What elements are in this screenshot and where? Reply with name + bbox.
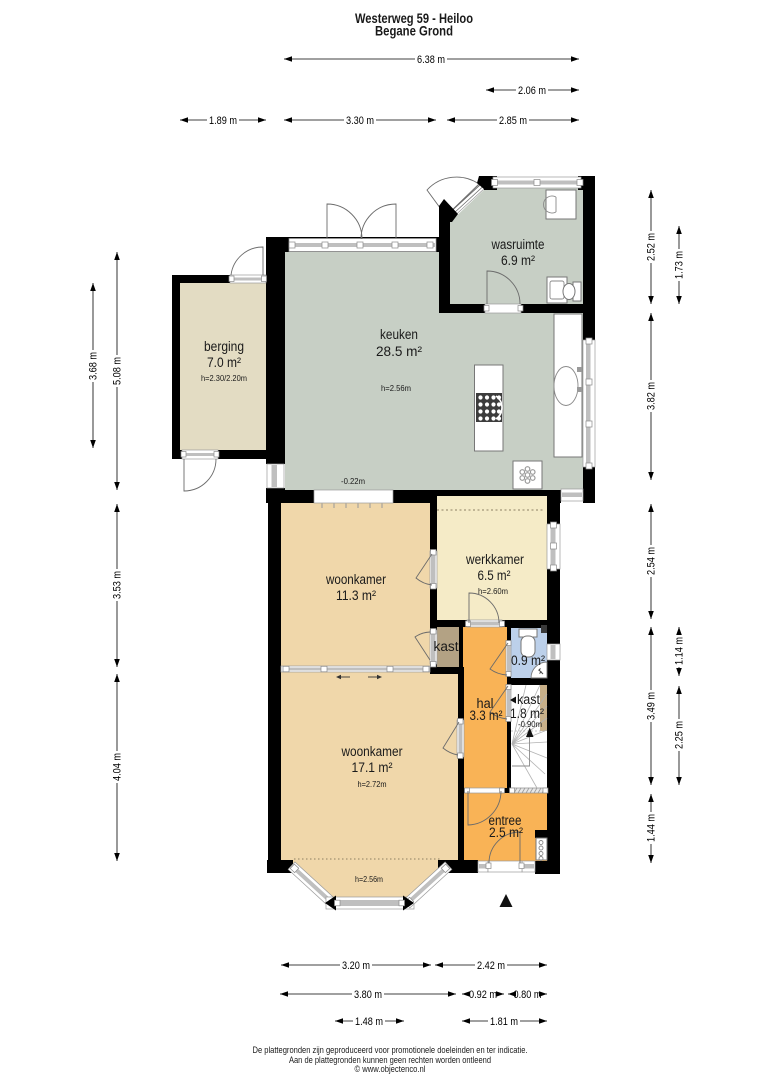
svg-text:2.85 m: 2.85 m <box>499 115 527 127</box>
svg-text:h=2.30/2.20m: h=2.30/2.20m <box>201 374 247 383</box>
svg-text:7.0 m²: 7.0 m² <box>207 355 241 370</box>
svg-text:kast: kast <box>434 639 459 654</box>
svg-text:-0.90m: -0.90m <box>518 720 542 729</box>
svg-text:1.14 m: 1.14 m <box>674 637 686 665</box>
svg-text:h=2.60m: h=2.60m <box>478 587 508 596</box>
svg-text:1.73 m: 1.73 m <box>674 251 686 279</box>
svg-text:h=2.56m: h=2.56m <box>355 875 383 884</box>
svg-text:6.5 m²: 6.5 m² <box>478 568 511 583</box>
svg-text:28.5 m²: 28.5 m² <box>376 344 422 359</box>
svg-text:11.3 m²: 11.3 m² <box>336 588 376 603</box>
svg-text:3.80 m: 3.80 m <box>354 989 382 1001</box>
svg-text:17.1 m²: 17.1 m² <box>352 760 393 775</box>
svg-text:h=2.72m: h=2.72m <box>358 780 387 789</box>
svg-text:5.08 m: 5.08 m <box>112 357 124 385</box>
svg-text:2.54 m: 2.54 m <box>646 547 658 575</box>
svg-text:keuken: keuken <box>380 327 418 342</box>
svg-text:woonkamer: woonkamer <box>341 744 403 759</box>
svg-text:0.92 m: 0.92 m <box>469 989 497 1001</box>
svg-text:woonkamer: woonkamer <box>325 572 386 587</box>
svg-text:2.06 m: 2.06 m <box>518 85 546 97</box>
svg-text:3.82 m: 3.82 m <box>646 382 658 410</box>
svg-text:1.81 m: 1.81 m <box>490 1016 518 1028</box>
svg-text:kast: kast <box>517 692 540 707</box>
svg-text:2.25 m: 2.25 m <box>674 721 686 749</box>
svg-text:1.8 m²: 1.8 m² <box>510 706 544 721</box>
svg-text:1.44 m: 1.44 m <box>646 814 658 842</box>
svg-text:3.3 m²: 3.3 m² <box>470 708 503 723</box>
svg-text:3.68 m: 3.68 m <box>88 352 100 380</box>
svg-text:werkkamer: werkkamer <box>465 552 524 567</box>
svg-text:6.9 m²: 6.9 m² <box>501 253 535 268</box>
svg-text:0.9 m²: 0.9 m² <box>511 653 545 668</box>
svg-text:3.20 m: 3.20 m <box>342 960 370 972</box>
svg-text:3.49 m: 3.49 m <box>646 692 658 720</box>
svg-text:-0.22m: -0.22m <box>341 477 365 486</box>
svg-text:4.04 m: 4.04 m <box>112 753 124 781</box>
svg-text:Begane Grond: Begane Grond <box>375 24 453 39</box>
svg-text:6.38 m: 6.38 m <box>417 54 445 66</box>
svg-text:wasruimte: wasruimte <box>491 237 545 252</box>
svg-text:h=2.56m: h=2.56m <box>381 384 411 393</box>
svg-text:0.80 m: 0.80 m <box>514 989 542 1001</box>
svg-text:2.52 m: 2.52 m <box>646 233 658 261</box>
svg-text:1.48 m: 1.48 m <box>355 1016 383 1028</box>
svg-text:3.53 m: 3.53 m <box>112 571 124 599</box>
svg-text:2.5 m²: 2.5 m² <box>489 825 523 840</box>
svg-text:berging: berging <box>204 339 244 354</box>
svg-text:3.30 m: 3.30 m <box>346 115 374 127</box>
svg-text:© www.objectenco.nl: © www.objectenco.nl <box>355 1064 426 1074</box>
svg-text:2.42 m: 2.42 m <box>477 960 505 972</box>
svg-text:1.89 m: 1.89 m <box>209 115 237 127</box>
svg-text:De plattegronden zijn geproduc: De plattegronden zijn geproduceerd voor … <box>253 1045 528 1055</box>
